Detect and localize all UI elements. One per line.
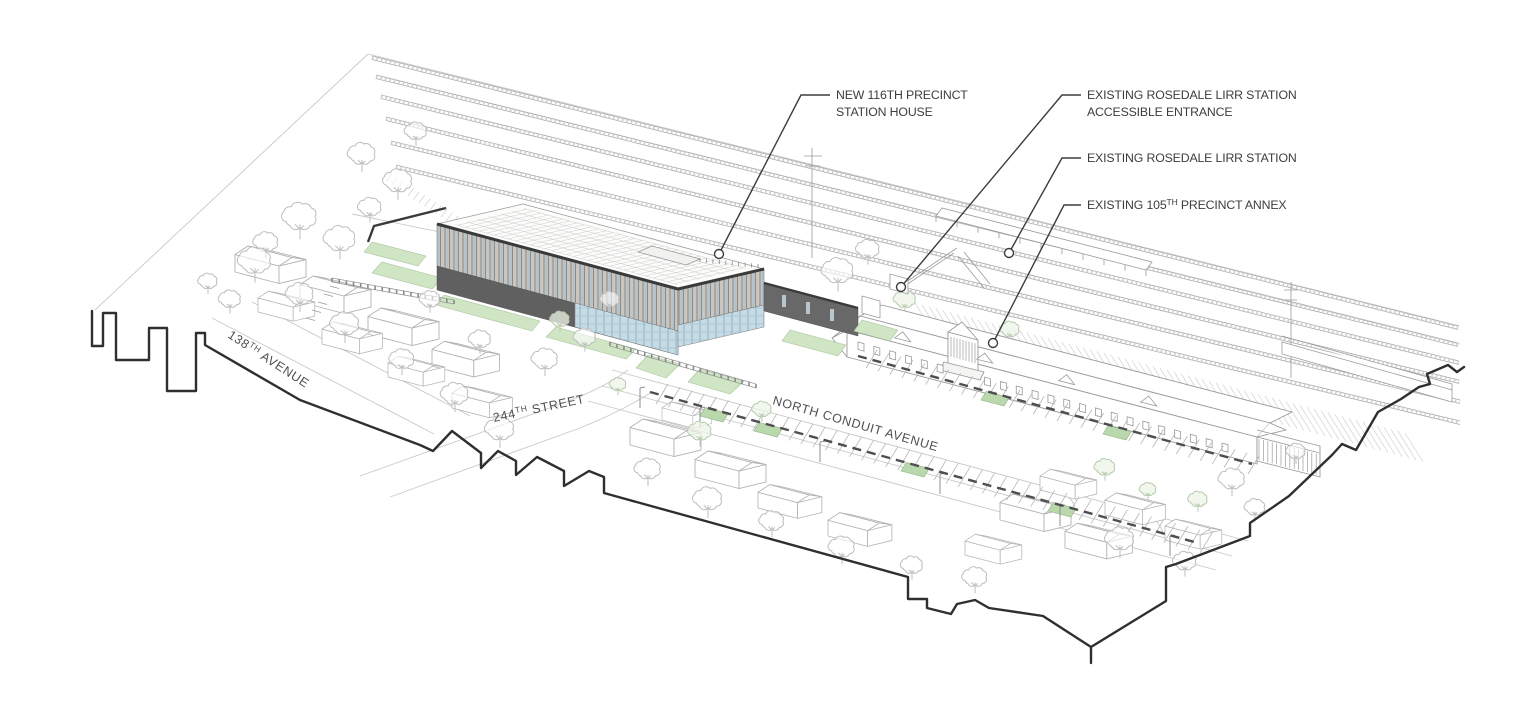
wing-slot-2 bbox=[806, 302, 810, 314]
green-terrace-2 bbox=[372, 262, 442, 289]
callout-label-new-precinct-line2: STATION HOUSE bbox=[836, 105, 933, 119]
callout-label-new-precinct-line1: NEW 116TH PRECINCT bbox=[836, 88, 968, 102]
east-wing-facade bbox=[764, 283, 858, 336]
wing-slot-3 bbox=[830, 309, 834, 321]
callout-label-precinct-annex: EXISTING 105TH PRECINCT ANNEX bbox=[1087, 197, 1286, 212]
green-terrace-1 bbox=[364, 242, 426, 266]
diagram-canvas: NEW 116TH PRECINCT STATION HOUSE EXISTIN… bbox=[0, 0, 1536, 718]
callout-leader-accessible-entrance bbox=[901, 95, 1081, 287]
wing-slot-1 bbox=[782, 295, 786, 307]
annex-east-box bbox=[1257, 437, 1320, 477]
callout-target-rosedale-station bbox=[1005, 249, 1014, 258]
callout-label-accessible-entrance-line1: EXISTING ROSEDALE LIRR STATION bbox=[1087, 88, 1297, 102]
callout-label-accessible-entrance-line2: ACCESSIBLE ENTRANCE bbox=[1087, 105, 1232, 119]
street-label-north-conduit-avenue: NORTH CONDUIT AVENUE bbox=[771, 393, 940, 454]
retaining-box bbox=[1282, 336, 1452, 402]
callout-target-precinct-annex bbox=[989, 339, 998, 348]
callout-labels: NEW 116TH PRECINCT STATION HOUSE EXISTIN… bbox=[836, 88, 1297, 212]
callout-label-rosedale-station: EXISTING ROSEDALE LIRR STATION bbox=[1087, 151, 1297, 165]
lawn-5 bbox=[782, 330, 846, 356]
callout-target-accessible-entrance bbox=[897, 283, 906, 292]
platform-canopy bbox=[936, 208, 1152, 270]
callout-target-new-precinct bbox=[715, 250, 724, 259]
site-back-edge bbox=[95, 54, 368, 310]
site-axonometric-diagram: NEW 116TH PRECINCT STATION HOUSE EXISTIN… bbox=[0, 0, 1536, 718]
